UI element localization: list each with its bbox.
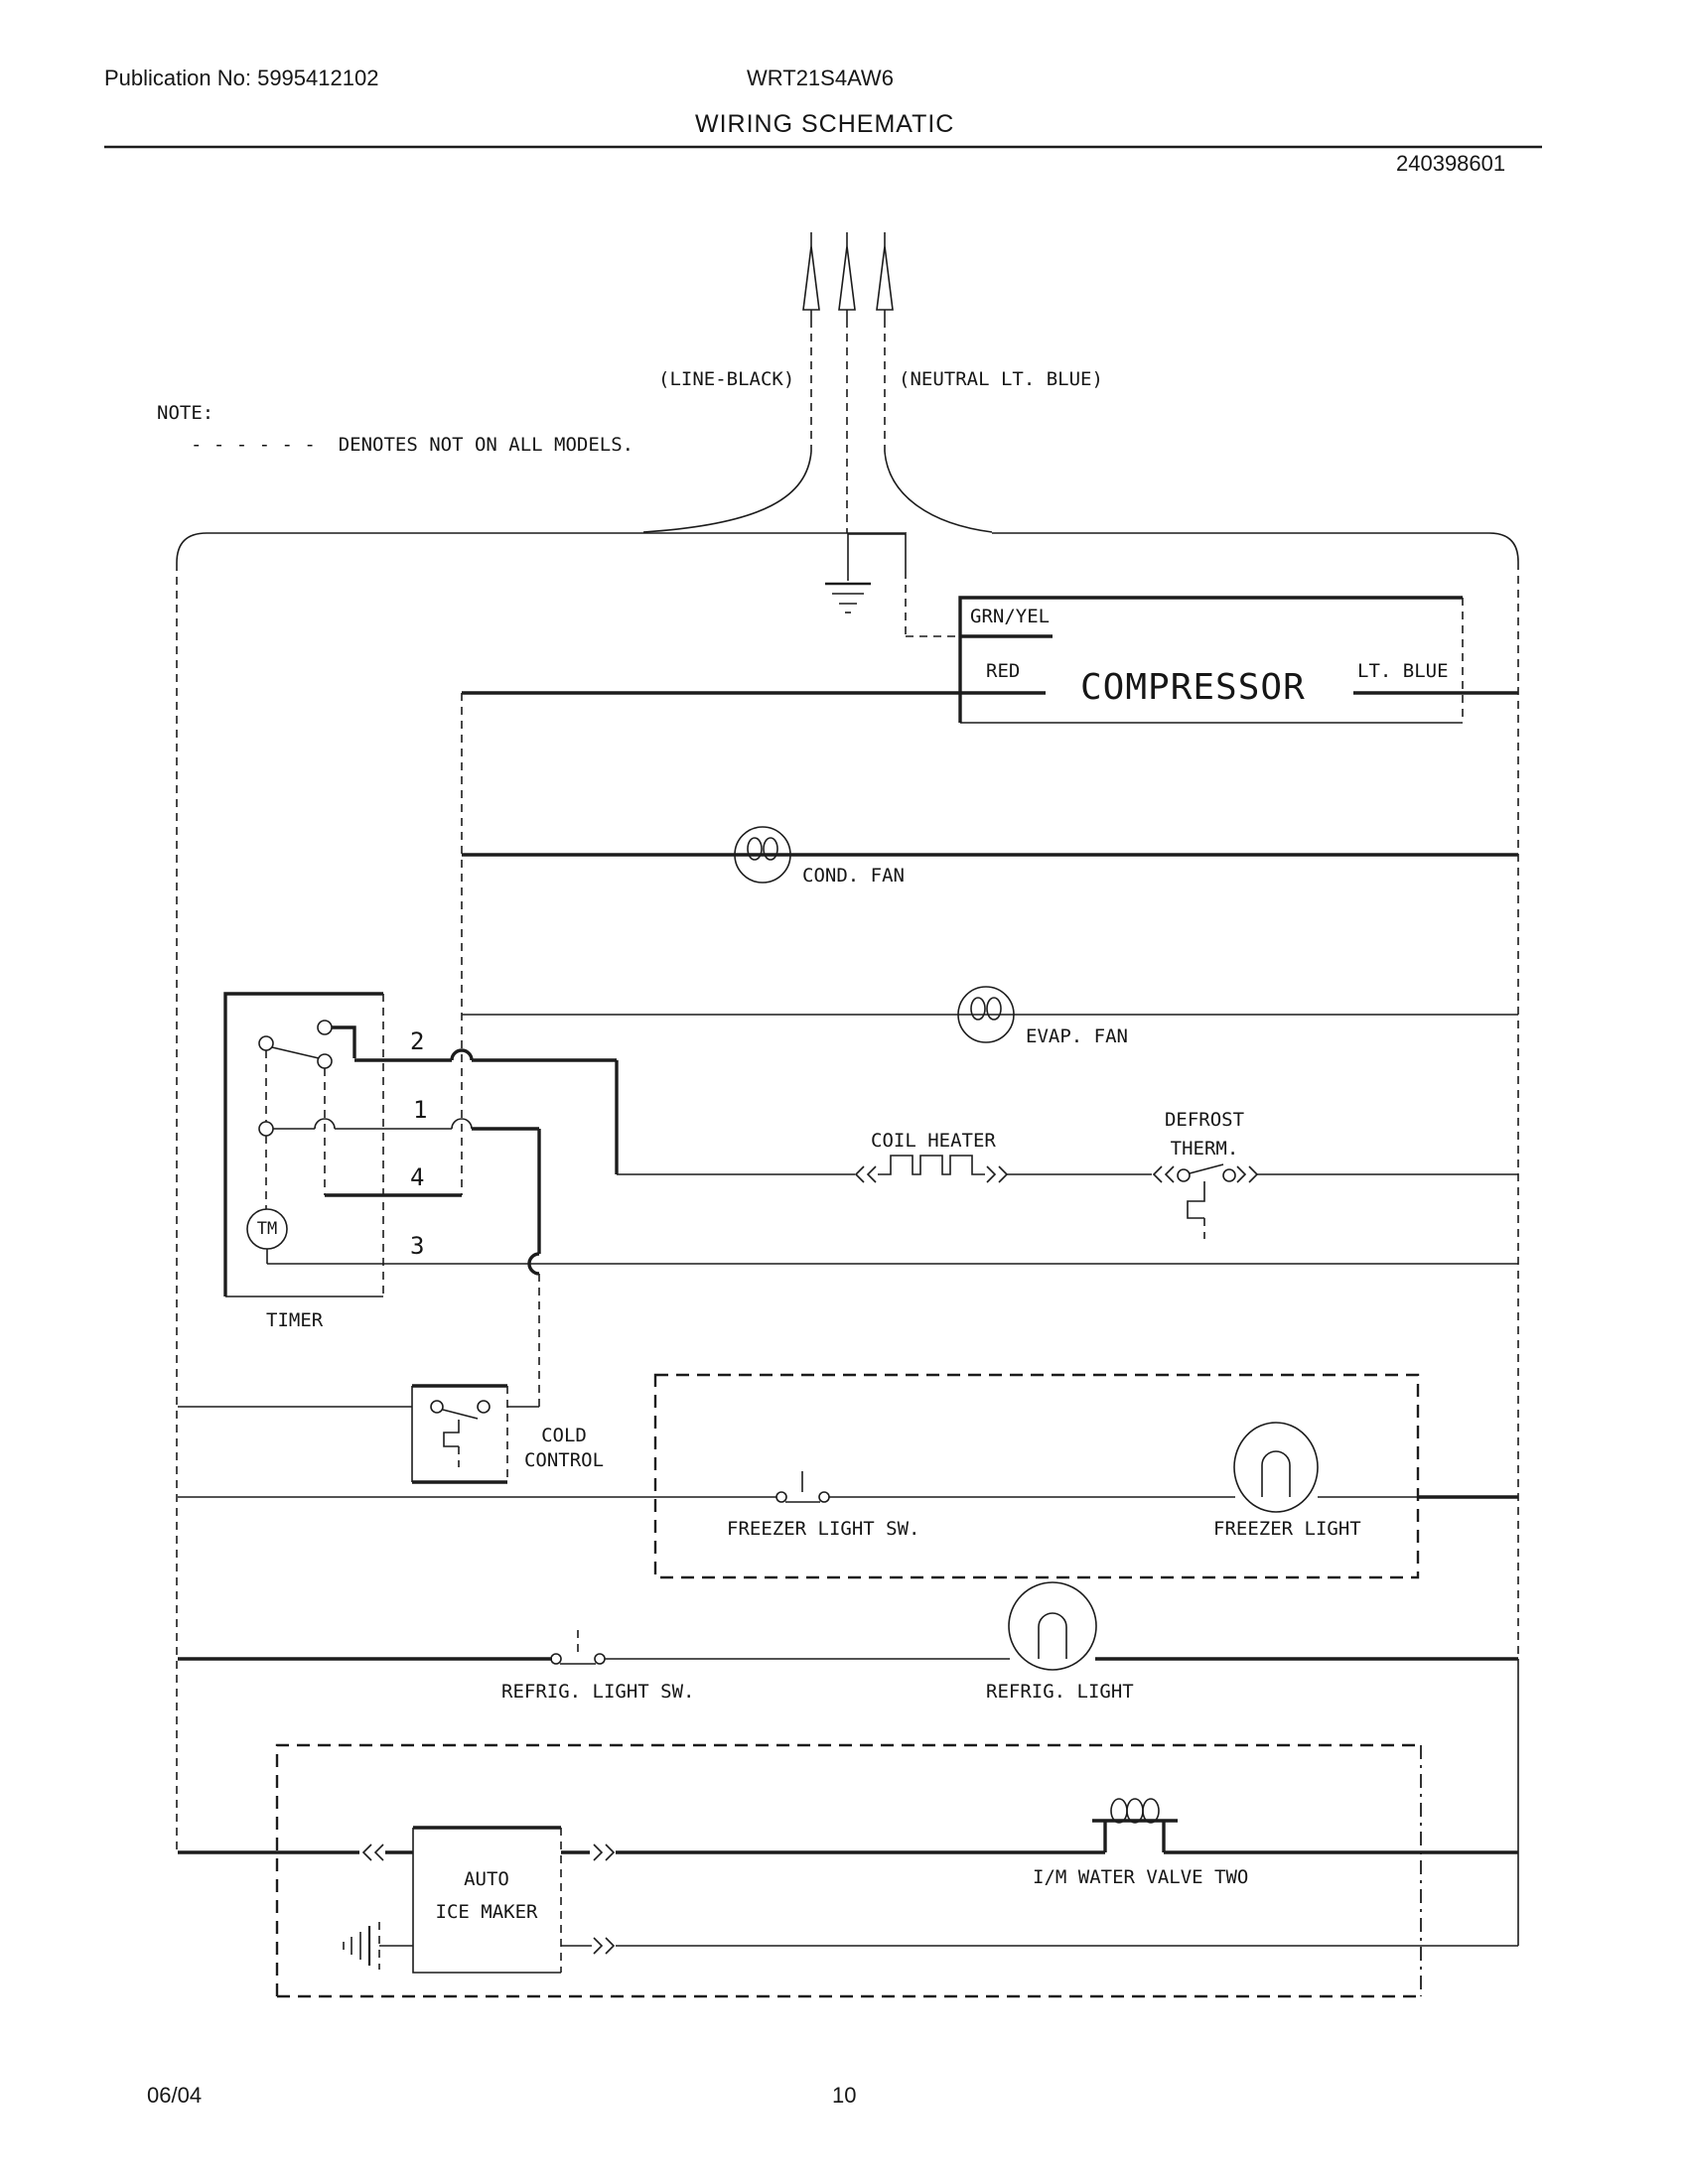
coil-heater-label: COIL HEATER bbox=[871, 1131, 996, 1153]
water-valve-coil-icon bbox=[1092, 1799, 1178, 1852]
cond-fan-row bbox=[462, 827, 1518, 883]
cold-control-box bbox=[178, 1386, 539, 1482]
ground-icon bbox=[825, 533, 871, 613]
timer-motor-label: TM bbox=[242, 1220, 292, 1240]
footer-date: 06/04 bbox=[147, 2083, 202, 2108]
freezer-light-switch-icon bbox=[776, 1471, 829, 1502]
defrost-therm-label-1: DEFROST bbox=[1145, 1110, 1264, 1132]
line-black-label: (LINE-BLACK) bbox=[658, 369, 794, 391]
page-title: WIRING SCHEMATIC bbox=[695, 110, 954, 139]
timer-terminal-2-label: 2 bbox=[410, 1028, 424, 1056]
coil-heater-element-icon bbox=[878, 1156, 985, 1174]
connector-icon bbox=[363, 1844, 383, 1860]
lt-blue-label: LT. BLUE bbox=[1357, 661, 1449, 683]
freezer-light-sw-label: FREEZER LIGHT SW. bbox=[727, 1519, 919, 1541]
grn-yel-label: GRN/YEL bbox=[970, 607, 1050, 628]
timer-contact-4 bbox=[318, 1054, 332, 1068]
cold-control-label-1: COLD bbox=[519, 1426, 609, 1447]
wire-terminal-2 bbox=[354, 1050, 617, 1174]
connector-icon bbox=[594, 1844, 614, 1860]
timer-pivot-contact bbox=[259, 1036, 273, 1050]
timer-label: TIMER bbox=[266, 1310, 323, 1332]
wire-terminal-1 bbox=[273, 1119, 539, 1407]
auto-ice-maker-label-2: ICE MAKER bbox=[417, 1902, 556, 1924]
coil-heater-row bbox=[617, 1156, 1518, 1239]
note-text: - - - - - - DENOTES NOT ON ALL MODELS. bbox=[191, 435, 633, 457]
refrig-light-switch-icon bbox=[551, 1630, 605, 1664]
refrig-light-lamp-icon bbox=[1009, 1582, 1096, 1670]
refrig-light-row bbox=[178, 1582, 1518, 1670]
schematic-page: Publication No: 5995412102 WRT21S4AW6 WI… bbox=[0, 0, 1688, 2184]
note-label: NOTE: bbox=[157, 403, 213, 425]
model-number: WRT21S4AW6 bbox=[747, 66, 894, 90]
ice-maker-ground-icon bbox=[344, 1922, 413, 1970]
auto-ice-maker-label-1: AUTO bbox=[417, 1869, 556, 1891]
neutral-label: (NEUTRAL LT. BLUE) bbox=[899, 369, 1103, 391]
connector-icon bbox=[856, 1166, 876, 1182]
auto-ice-maker-box bbox=[413, 1828, 561, 1973]
cond-fan-label: COND. FAN bbox=[802, 866, 905, 887]
im-water-valve-label: I/M WATER VALVE TWO bbox=[1033, 1867, 1248, 1889]
timer-switch-arm bbox=[272, 1047, 319, 1058]
cold-control-label-2: CONTROL bbox=[519, 1450, 609, 1472]
connector-icon bbox=[987, 1166, 1007, 1182]
timer-terminal-4-label: 4 bbox=[410, 1164, 424, 1192]
evap-fan-label: EVAP. FAN bbox=[1026, 1026, 1128, 1048]
timer-terminal-3-label: 3 bbox=[410, 1233, 424, 1261]
part-number: 240398601 bbox=[1396, 151, 1505, 176]
timer-contact-2 bbox=[318, 1021, 332, 1034]
red-label: RED bbox=[986, 661, 1020, 683]
defrost-therm-icon bbox=[1178, 1164, 1235, 1239]
ice-maker-circuit bbox=[178, 1799, 1518, 1973]
timer-contact-1 bbox=[259, 1122, 273, 1136]
publication-number: Publication No: 5995412102 bbox=[104, 66, 378, 90]
footer-page-number: 10 bbox=[832, 2083, 856, 2108]
connector-icon bbox=[594, 1938, 614, 1954]
connector-icon bbox=[1154, 1166, 1174, 1182]
compressor-label: COMPRESSOR bbox=[1080, 667, 1306, 708]
freezer-optional-box bbox=[655, 1375, 1418, 1577]
refrig-light-sw-label: REFRIG. LIGHT SW. bbox=[501, 1682, 694, 1704]
timer-box bbox=[225, 994, 383, 1297]
defrost-therm-label-2: THERM. bbox=[1145, 1139, 1264, 1160]
schematic-linework bbox=[0, 0, 1688, 2184]
freezer-light-lamp-icon bbox=[1234, 1423, 1318, 1512]
evap-fan-row bbox=[462, 987, 1518, 1042]
timer-terminal-1-label: 1 bbox=[413, 1097, 427, 1125]
freezer-light-row bbox=[178, 1423, 1518, 1512]
outer-boundary bbox=[177, 533, 1518, 1946]
refrig-light-label: REFRIG. LIGHT bbox=[986, 1682, 1134, 1704]
connector-icon bbox=[1237, 1166, 1257, 1182]
freezer-light-label: FREEZER LIGHT bbox=[1213, 1519, 1361, 1541]
